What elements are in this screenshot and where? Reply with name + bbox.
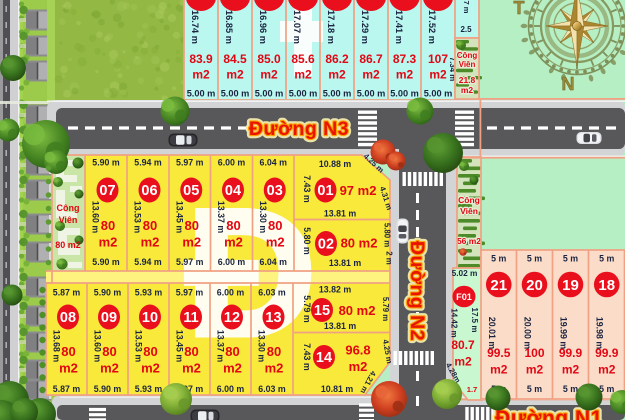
- svg-text:13.60 m: 13.60 m: [91, 201, 101, 233]
- svg-text:85.0: 85.0: [257, 52, 281, 66]
- svg-text:80.7: 80.7: [451, 338, 475, 352]
- svg-text:80: 80: [268, 218, 282, 233]
- svg-text:86.2: 86.2: [325, 52, 349, 66]
- svg-text:6.00 m: 6.00 m: [218, 257, 246, 267]
- svg-text:08: 08: [60, 310, 76, 326]
- svg-text:10.88 m: 10.88 m: [319, 159, 351, 169]
- svg-text:Công: Công: [57, 203, 80, 213]
- svg-text:5.79 m: 5.79 m: [381, 297, 390, 321]
- svg-text:m2: m2: [141, 361, 160, 376]
- svg-text:5.00 m: 5.00 m: [424, 89, 453, 99]
- svg-text:12: 12: [224, 310, 240, 326]
- svg-text:80 m2: 80 m2: [55, 240, 81, 250]
- svg-text:16.74 m: 16.74 m: [190, 10, 200, 44]
- svg-text:86.7: 86.7: [359, 52, 383, 66]
- svg-text:13.60 m: 13.60 m: [93, 330, 103, 362]
- svg-text:6.00 m: 6.00 m: [217, 288, 245, 298]
- svg-text:F01: F01: [456, 292, 472, 302]
- svg-text:Đường N3: Đường N3: [249, 118, 349, 140]
- svg-text:5.00 m: 5.00 m: [255, 89, 284, 99]
- svg-text:03: 03: [267, 183, 283, 199]
- svg-text:m2: m2: [141, 235, 160, 250]
- svg-text:17.18 m: 17.18 m: [326, 10, 336, 44]
- svg-text:80: 80: [143, 218, 157, 233]
- svg-text:m2: m2: [224, 235, 243, 250]
- svg-text:13.45 m: 13.45 m: [175, 201, 185, 233]
- svg-text:80: 80: [61, 344, 75, 359]
- svg-text:5.00 m: 5.00 m: [289, 89, 318, 99]
- svg-text:80: 80: [267, 344, 281, 359]
- svg-text:m2: m2: [182, 361, 201, 376]
- svg-text:80: 80: [226, 218, 240, 233]
- svg-text:56 m2: 56 m2: [457, 236, 481, 246]
- svg-text:5.94 m: 5.94 m: [134, 158, 162, 168]
- svg-text:5 m: 5 m: [599, 254, 614, 264]
- svg-text:5.97 m: 5.97 m: [176, 158, 204, 168]
- svg-text:m2: m2: [349, 359, 368, 374]
- svg-text:5.90 m: 5.90 m: [92, 158, 120, 168]
- svg-text:13.53 m: 13.53 m: [133, 201, 143, 233]
- svg-text:m2: m2: [490, 363, 508, 377]
- svg-text:13.53 m: 13.53 m: [134, 330, 144, 362]
- svg-text:Công: Công: [457, 51, 478, 60]
- svg-text:5 m: 5 m: [563, 384, 578, 394]
- svg-text:80: 80: [184, 344, 198, 359]
- svg-text:m2: m2: [59, 361, 78, 376]
- svg-text:16.85 m: 16.85 m: [224, 10, 234, 44]
- svg-text:m2: m2: [526, 363, 544, 377]
- svg-text:6.03 m: 6.03 m: [258, 288, 286, 298]
- svg-text:87.3: 87.3: [393, 52, 417, 66]
- svg-text:10: 10: [142, 310, 158, 326]
- svg-text:13.30 m: 13.30 m: [257, 330, 267, 362]
- svg-text:17.52 m: 17.52 m: [427, 10, 437, 44]
- svg-text:20.01 m: 20.01 m: [487, 317, 497, 349]
- svg-text:97 m2: 97 m2: [340, 183, 377, 198]
- svg-text:5.90 m: 5.90 m: [92, 257, 120, 267]
- svg-text:100: 100: [524, 346, 544, 360]
- svg-text:13.68 m: 13.68 m: [52, 330, 62, 362]
- svg-text:5 m: 5 m: [563, 254, 578, 264]
- svg-text:5.00 m: 5.00 m: [390, 89, 419, 99]
- svg-text:99.9: 99.9: [595, 346, 619, 360]
- svg-text:1.7: 1.7: [467, 385, 478, 394]
- svg-text:Công: Công: [458, 195, 480, 205]
- svg-text:5 m: 5 m: [527, 384, 542, 394]
- svg-text:m2: m2: [598, 363, 616, 377]
- svg-text:6.00 m: 6.00 m: [217, 384, 245, 394]
- svg-text:17.5 m: 17.5 m: [470, 308, 479, 333]
- svg-text:5.00 m: 5.00 m: [357, 89, 386, 99]
- svg-text:14.42 m: 14.42 m: [450, 308, 459, 337]
- svg-text:13: 13: [265, 310, 281, 326]
- svg-text:2.5: 2.5: [460, 25, 472, 34]
- svg-text:Đường N2: Đường N2: [406, 241, 428, 341]
- svg-text:5.87 m: 5.87 m: [53, 288, 81, 298]
- svg-text:5.87 m: 5.87 m: [53, 384, 81, 394]
- svg-text:Viên: Viên: [460, 206, 478, 216]
- svg-text:21: 21: [490, 277, 507, 294]
- svg-text:02: 02: [318, 237, 334, 253]
- svg-text:19.98 m: 19.98 m: [595, 317, 605, 349]
- svg-text:5 m: 5 m: [491, 254, 506, 264]
- svg-text:5.90 m: 5.90 m: [94, 288, 122, 298]
- svg-text:21.8: 21.8: [459, 75, 476, 85]
- svg-text:06: 06: [141, 183, 157, 199]
- svg-text:10.81 m: 10.81 m: [321, 384, 353, 394]
- svg-text:13.81 m: 13.81 m: [324, 321, 356, 331]
- svg-text:09: 09: [101, 310, 117, 326]
- svg-text:5.00 m: 5.00 m: [187, 89, 216, 99]
- svg-text:20.00 m: 20.00 m: [523, 317, 533, 349]
- svg-text:20: 20: [526, 277, 543, 294]
- svg-text:5.93 m: 5.93 m: [135, 384, 163, 394]
- svg-text:m2: m2: [461, 85, 474, 95]
- svg-text:7 m: 7 m: [462, 1, 471, 14]
- svg-text:13.37 m: 13.37 m: [216, 201, 226, 233]
- svg-text:15: 15: [314, 303, 330, 319]
- svg-text:85.6: 85.6: [291, 52, 315, 66]
- svg-text:5.79 m: 5.79 m: [302, 295, 312, 323]
- svg-text:80: 80: [102, 344, 116, 359]
- svg-text:80 m2: 80 m2: [339, 303, 376, 318]
- svg-text:5.94 m: 5.94 m: [134, 257, 162, 267]
- svg-text:13.81 m: 13.81 m: [324, 209, 356, 219]
- svg-text:m2: m2: [265, 361, 284, 376]
- svg-text:6.04 m: 6.04 m: [260, 257, 288, 267]
- svg-text:99.9: 99.9: [559, 346, 583, 360]
- svg-text:5.00 m: 5.00 m: [221, 89, 250, 99]
- svg-text:80 m2: 80 m2: [341, 236, 378, 251]
- svg-text:2 m: 2 m: [385, 251, 394, 265]
- svg-text:05: 05: [183, 183, 199, 199]
- svg-text:14: 14: [316, 350, 332, 366]
- svg-text:m2: m2: [294, 68, 312, 82]
- svg-text:m2: m2: [192, 68, 210, 82]
- svg-text:19.99 m: 19.99 m: [559, 317, 569, 349]
- svg-text:99.5: 99.5: [487, 346, 511, 360]
- svg-text:83.9: 83.9: [189, 52, 213, 66]
- svg-text:80: 80: [185, 218, 199, 233]
- svg-text:18: 18: [598, 277, 615, 294]
- svg-text:16.96 m: 16.96 m: [258, 10, 268, 44]
- svg-text:80: 80: [101, 218, 115, 233]
- svg-text:17.29 m: 17.29 m: [360, 10, 370, 44]
- svg-text:13.30 m: 13.30 m: [258, 201, 268, 233]
- svg-text:7.43 m: 7.43 m: [302, 175, 312, 203]
- svg-text:m2: m2: [328, 68, 346, 82]
- svg-text:5.97 m: 5.97 m: [176, 288, 204, 298]
- svg-text:m2: m2: [562, 363, 580, 377]
- svg-text:m2: m2: [396, 68, 414, 82]
- svg-text:Viên: Viên: [59, 215, 78, 225]
- svg-text:T: T: [514, 0, 525, 18]
- svg-text:6.04 m: 6.04 m: [260, 158, 288, 168]
- svg-text:m2: m2: [182, 235, 201, 250]
- svg-text:5.80 m: 5.80 m: [383, 223, 392, 247]
- svg-text:07: 07: [99, 183, 115, 199]
- svg-text:84.5: 84.5: [223, 52, 247, 66]
- svg-text:5.02 m: 5.02 m: [452, 268, 478, 278]
- svg-text:m2: m2: [362, 68, 380, 82]
- svg-text:04: 04: [225, 183, 241, 199]
- svg-text:m2: m2: [454, 355, 472, 369]
- svg-text:107: 107: [428, 52, 448, 66]
- svg-text:5.93 m: 5.93 m: [135, 288, 163, 298]
- svg-text:01: 01: [317, 183, 333, 199]
- svg-text:m2: m2: [99, 235, 118, 250]
- svg-text:N: N: [562, 74, 575, 94]
- svg-text:11: 11: [183, 310, 198, 326]
- svg-text:6.03 m: 6.03 m: [258, 384, 286, 394]
- svg-text:13.37 m: 13.37 m: [216, 330, 226, 362]
- svg-text:m2: m2: [226, 68, 244, 82]
- svg-text:m2: m2: [260, 68, 278, 82]
- svg-text:5.00 m: 5.00 m: [323, 89, 352, 99]
- svg-text:m2: m2: [223, 361, 242, 376]
- svg-text:5 m: 5 m: [527, 254, 542, 264]
- svg-text:m2: m2: [100, 361, 119, 376]
- svg-text:19: 19: [562, 277, 579, 294]
- svg-text:Viên: Viên: [459, 60, 476, 69]
- svg-text:13.82 m: 13.82 m: [319, 285, 351, 295]
- svg-text:17.41 m: 17.41 m: [394, 10, 404, 44]
- svg-text:m2: m2: [266, 235, 285, 250]
- svg-text:13.81 m: 13.81 m: [329, 258, 361, 268]
- svg-text:17.07 m: 17.07 m: [292, 10, 302, 44]
- svg-text:5.97 m: 5.97 m: [176, 257, 204, 267]
- svg-text:7.43 m: 7.43 m: [302, 343, 312, 371]
- svg-text:80: 80: [143, 344, 157, 359]
- svg-text:5.90 m: 5.90 m: [94, 384, 122, 394]
- svg-text:6.00 m: 6.00 m: [218, 158, 246, 168]
- svg-text:13.45 m: 13.45 m: [175, 330, 185, 362]
- svg-text:80: 80: [225, 344, 239, 359]
- svg-text:m2: m2: [429, 68, 447, 82]
- svg-text:5.80 m: 5.80 m: [302, 227, 312, 255]
- svg-text:96.8: 96.8: [345, 343, 370, 358]
